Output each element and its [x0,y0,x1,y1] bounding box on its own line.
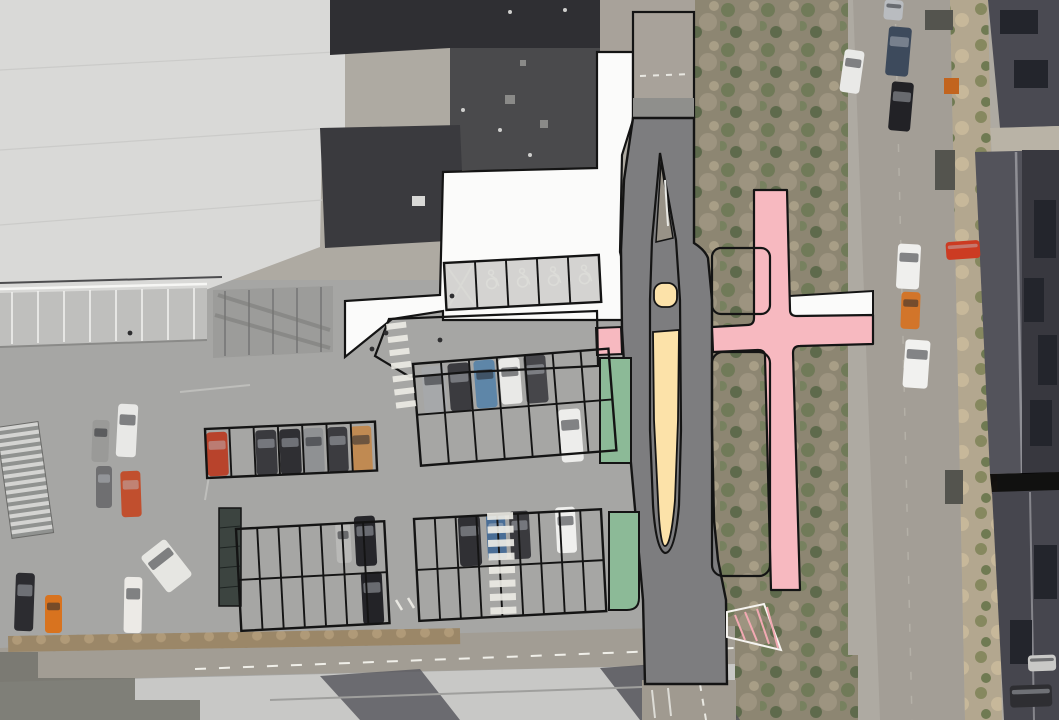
parking-row-accessible-row [444,255,601,310]
car [303,428,325,474]
scrub-bottom [733,655,858,720]
pedestrian [384,331,389,336]
car [14,573,35,632]
car [120,471,142,518]
car [327,427,349,473]
car [498,357,523,405]
car [473,359,498,408]
car [1010,684,1053,707]
car [883,0,904,21]
dark-roof-center [450,48,600,170]
car [902,339,930,389]
car [885,26,912,77]
car [91,420,109,463]
car [116,404,139,458]
green-strip-south [609,512,639,610]
pedestrian [438,338,443,343]
car [555,507,577,554]
car [888,81,914,132]
island-cream-cap [654,283,677,307]
existing-road-box [633,12,694,118]
pedestrian [128,331,133,336]
car [1028,655,1057,672]
car [896,243,921,289]
pedestrian [370,347,375,352]
car [945,240,980,260]
car [96,466,112,508]
car [255,430,278,476]
aerial-site-plan [0,0,1059,720]
car [900,292,920,330]
car [45,595,62,633]
car [124,577,143,633]
site-plan-canvas [0,0,1059,720]
car [361,571,385,624]
pedestrian [450,294,455,299]
car [279,429,302,475]
supermarket-roof [0,0,345,302]
car [206,432,229,477]
